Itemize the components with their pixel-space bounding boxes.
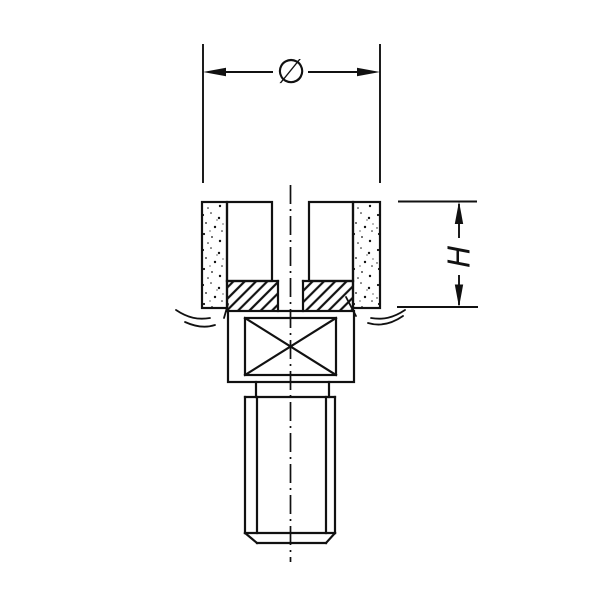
height-symbol-label: H	[443, 245, 478, 268]
abrasive-rim-left-fill	[202, 202, 227, 308]
technical-drawing: ∅ H	[0, 0, 600, 600]
abrasive-rim-right-fill	[353, 202, 380, 308]
drawing-canvas: ∅ H	[0, 0, 600, 600]
diameter-symbol-label: ∅	[276, 52, 306, 92]
